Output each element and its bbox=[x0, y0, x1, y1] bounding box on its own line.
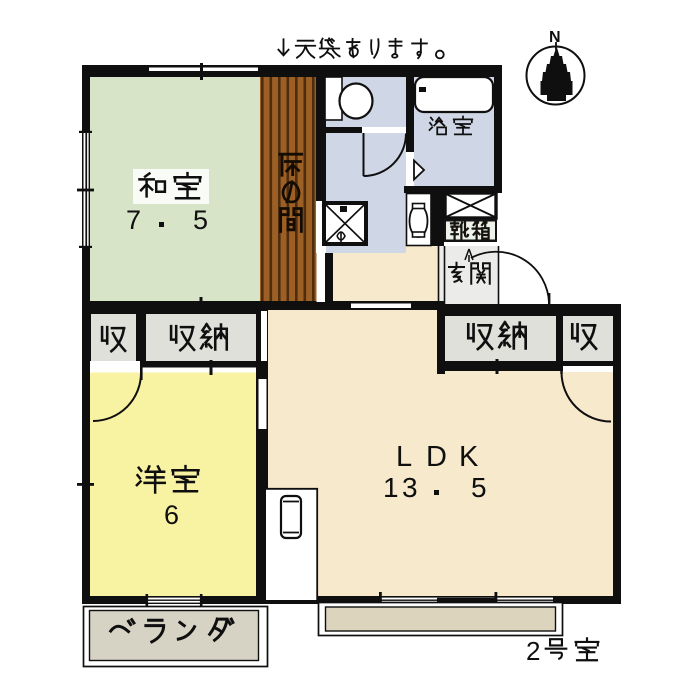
svg-text:2: 2 bbox=[526, 636, 540, 666]
svg-text:N: N bbox=[549, 29, 561, 46]
svg-text:5: 5 bbox=[193, 205, 208, 235]
svg-text:7: 7 bbox=[126, 205, 141, 235]
svg-text:5: 5 bbox=[471, 472, 487, 503]
svg-text:6: 6 bbox=[164, 500, 179, 530]
svg-text:LDK: LDK bbox=[396, 441, 479, 473]
